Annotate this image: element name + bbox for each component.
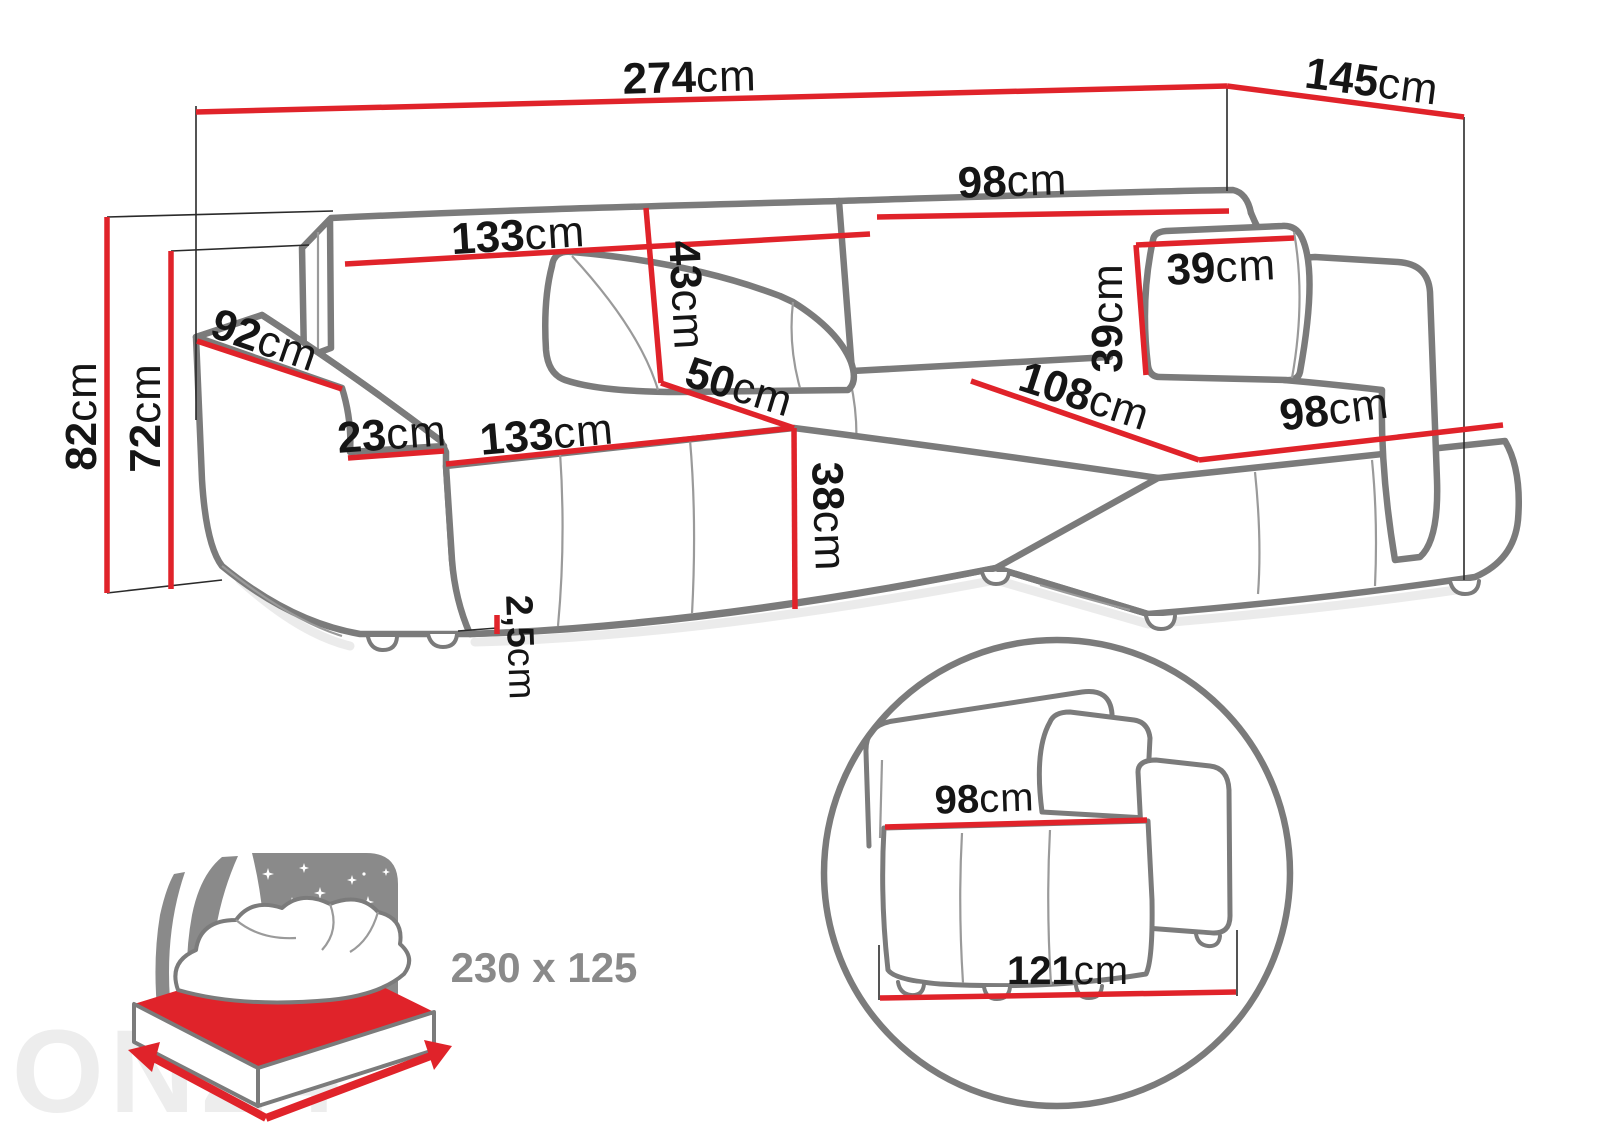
dim-label-pillow-height: 39cm — [1083, 263, 1132, 373]
dim-line-backrest-right-width — [877, 211, 1229, 217]
dim-label-inset-base-width: 121cm — [1007, 949, 1129, 993]
diagram-canvas: ON24 — [0, 0, 1600, 1145]
bed-size-label: 230 x 125 — [451, 944, 638, 991]
dim-label-seat-height: 38cm — [802, 461, 855, 572]
dim-label-armrest-width: 23cm — [336, 406, 449, 463]
dim-label-leg-height: 2,5cm — [497, 594, 543, 701]
dim-label-backrest-right-width: 98cm — [957, 155, 1068, 208]
dim-label-backrest-cushion-height: 43cm — [659, 239, 714, 351]
sofa-dimension-diagram: ON24 — [0, 0, 1600, 1145]
dim-label-inset-seat-width: 98cm — [934, 775, 1035, 822]
detail-inset: 98cm 121cm — [824, 640, 1290, 1106]
dim-label-total-height: 82cm — [57, 361, 106, 471]
dim-label-back-width: 274cm — [622, 51, 757, 103]
dim-label-side-depth: 145cm — [1302, 49, 1441, 115]
dim-label-backrest-cushion-width: 133cm — [450, 207, 587, 264]
dim-line-seat-height — [794, 428, 795, 609]
dim-label-pillow-width: 39cm — [1165, 240, 1277, 295]
inset-pillow — [1039, 712, 1150, 818]
dim-label-chaise-width: 98cm — [1277, 379, 1392, 441]
dim-label-backrest-height: 72cm — [121, 363, 170, 473]
